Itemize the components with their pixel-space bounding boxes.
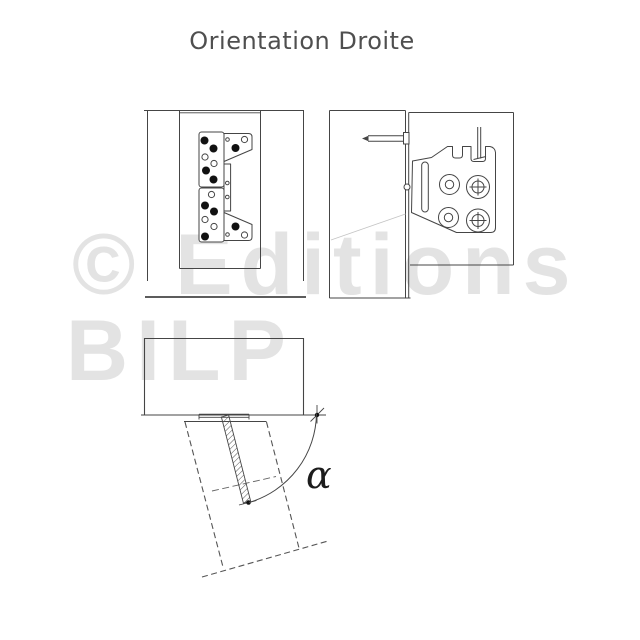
technical-drawing-canvas: α [0, 0, 640, 640]
tabletop-outline [145, 339, 304, 416]
hanger-bolt [221, 415, 256, 505]
plate-slot [422, 162, 429, 212]
angle-view-drawing: α [141, 339, 332, 578]
screw-icon [362, 133, 409, 145]
sight-line [331, 214, 406, 240]
corner-bracket [199, 132, 252, 242]
page-title: Orientation Droite [0, 27, 604, 55]
angle-label: α [306, 453, 332, 497]
front-view-drawing [144, 111, 306, 298]
side-view-drawing [330, 111, 514, 299]
tabletop-edge-outline [330, 111, 411, 299]
hook-pin-icon [474, 127, 487, 160]
datum-cross [311, 405, 325, 424]
hinge-pin [404, 184, 410, 190]
